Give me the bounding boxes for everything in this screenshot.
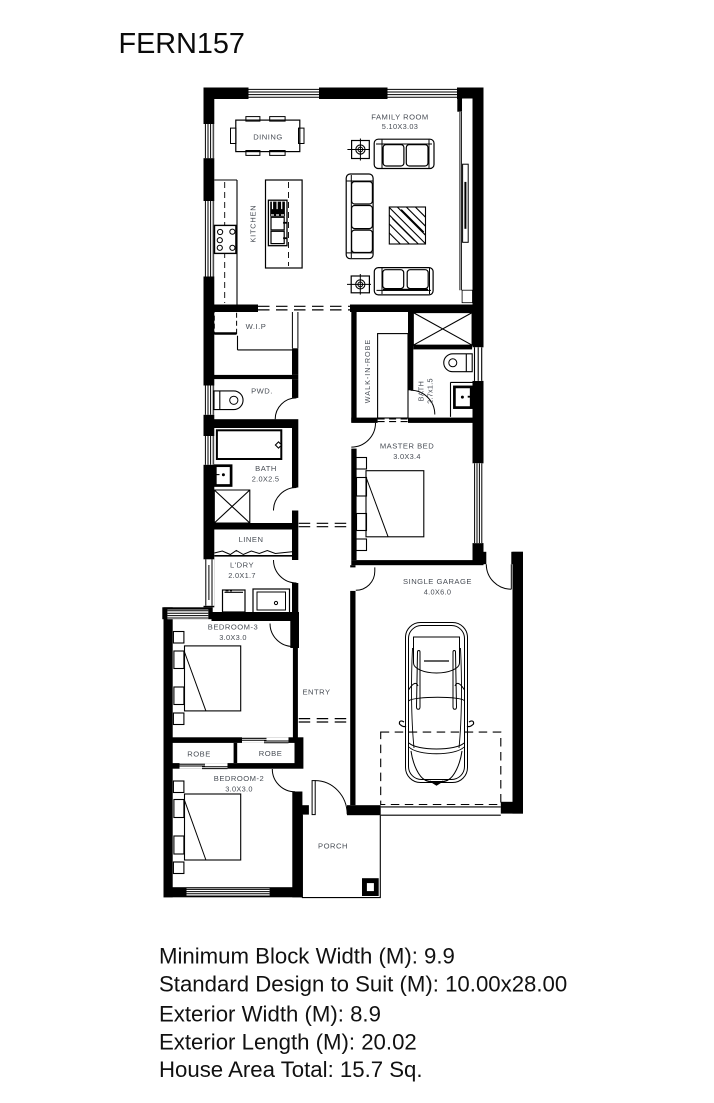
svg-text:4.0X6.0: 4.0X6.0: [424, 587, 452, 596]
svg-text:BATH: BATH: [417, 381, 426, 402]
svg-text:3.0X3.4: 3.0X3.4: [393, 452, 421, 461]
svg-text:5.10X3.03: 5.10X3.03: [382, 122, 418, 131]
svg-text:3.0X3.0: 3.0X3.0: [219, 633, 247, 642]
svg-text:ROBE: ROBE: [187, 750, 211, 759]
svg-text:Exterior Width (M): 8.9: Exterior Width (M): 8.9: [159, 1002, 381, 1027]
svg-text:LINEN: LINEN: [239, 535, 264, 544]
svg-text:DINING: DINING: [253, 133, 283, 142]
svg-text:Exterior Length (M): 20.02: Exterior Length (M): 20.02: [159, 1029, 417, 1054]
svg-text:ENTRY: ENTRY: [302, 688, 330, 697]
svg-text:BEDROOM-3: BEDROOM-3: [208, 623, 259, 632]
svg-text:L'DRY: L'DRY: [230, 561, 254, 570]
svg-text:2.7x1.5: 2.7x1.5: [426, 378, 435, 404]
svg-text:PWD.: PWD.: [251, 387, 273, 396]
svg-text:WALK-IN-ROBE: WALK-IN-ROBE: [363, 339, 372, 403]
svg-text:FAMILY ROOM: FAMILY ROOM: [371, 112, 429, 121]
svg-text:House Area Total: 15.7 Sq.: House Area Total: 15.7 Sq.: [159, 1057, 423, 1082]
svg-text:2.0X2.5: 2.0X2.5: [252, 475, 280, 484]
svg-text:PORCH: PORCH: [318, 841, 348, 850]
svg-text:ROBE: ROBE: [259, 749, 283, 758]
svg-text:MASTER BED: MASTER BED: [380, 442, 434, 451]
svg-text:FERN157: FERN157: [119, 28, 245, 60]
svg-text:W.I.P: W.I.P: [246, 322, 267, 331]
svg-text:Standard Design to Suit (M): 1: Standard Design to Suit (M): 10.00x28.00: [159, 972, 567, 997]
svg-text:3.0X3.0: 3.0X3.0: [225, 784, 253, 793]
svg-text:2.0X1.7: 2.0X1.7: [228, 571, 256, 580]
svg-text:BATH: BATH: [255, 464, 277, 473]
svg-text:SINGLE GARAGE: SINGLE GARAGE: [403, 577, 472, 586]
svg-text:KITCHEN: KITCHEN: [248, 205, 257, 243]
svg-text:BEDROOM-2: BEDROOM-2: [214, 774, 265, 783]
svg-text:Minimum Block Width (M): 9.9: Minimum Block Width (M): 9.9: [159, 944, 455, 969]
